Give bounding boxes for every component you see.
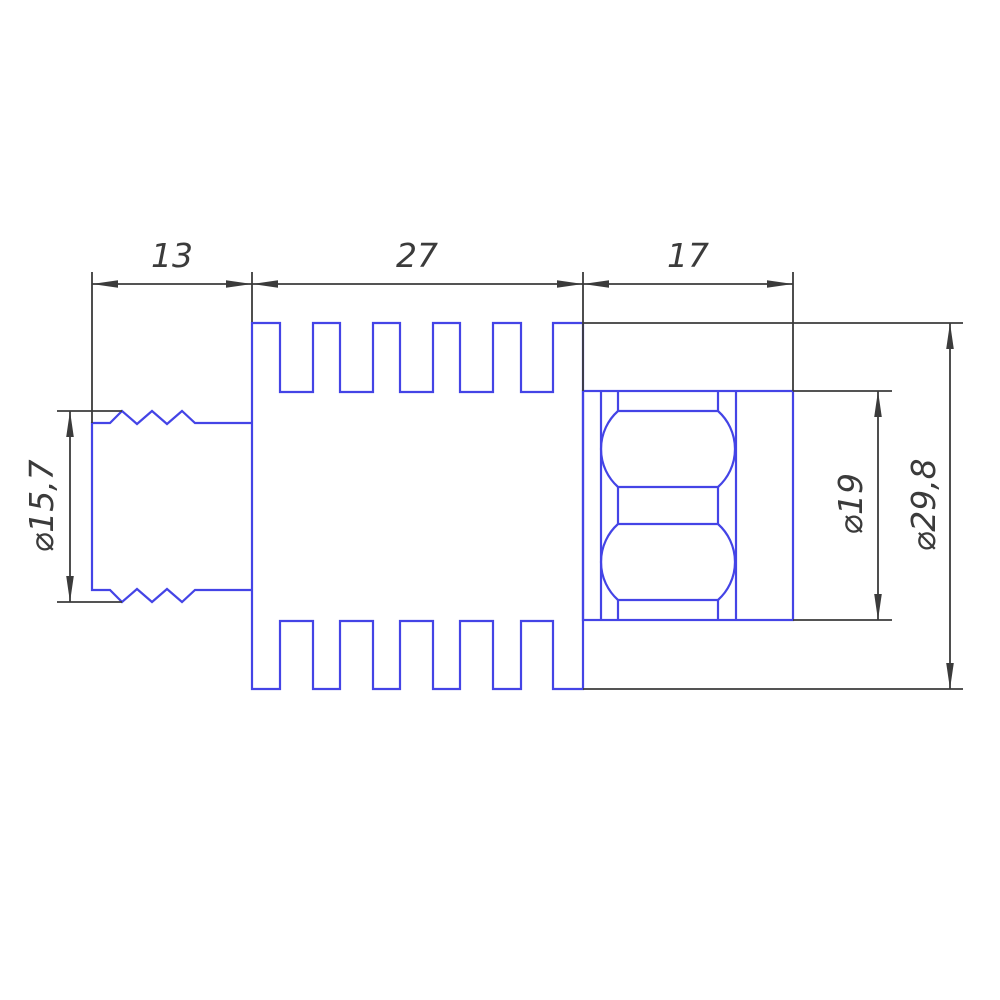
arrow-d19-bottom	[874, 594, 882, 620]
arrow-17-right	[767, 280, 793, 288]
dimension-lines	[57, 272, 963, 689]
arrow-d157-top	[66, 411, 74, 437]
label-diameter-19: ⌀19	[831, 473, 870, 535]
arrow-d298-bottom	[946, 663, 954, 689]
arrow-13-right	[226, 280, 252, 288]
label-length-27: 27	[396, 236, 438, 275]
barrel-roller-lower	[601, 524, 735, 600]
part-geometry	[92, 323, 793, 689]
label-diameter-15-7: ⌀15,7	[22, 459, 61, 552]
arrow-13-left	[92, 280, 118, 288]
arrow-d298-top	[946, 323, 954, 349]
arrow-d19-top	[874, 391, 882, 417]
arrow-27-right	[557, 280, 583, 288]
barrel-roller-upper	[601, 411, 735, 487]
dimension-arrows	[66, 280, 954, 689]
arrow-27-left	[252, 280, 278, 288]
finned-body-outline	[252, 323, 583, 689]
label-diameter-29-8: ⌀29,8	[904, 458, 943, 551]
drawing-canvas: 13 27 17 ⌀15,7 ⌀19 ⌀29,8	[0, 0, 1000, 1000]
arrow-d157-bottom	[66, 576, 74, 602]
label-length-17: 17	[667, 236, 709, 275]
technical-drawing: 13 27 17 ⌀15,7 ⌀19 ⌀29,8	[0, 0, 1000, 1000]
bearing-outer-rect	[583, 391, 793, 620]
label-length-13: 13	[151, 236, 193, 275]
arrow-17-left	[583, 280, 609, 288]
threaded-stub-outline	[92, 411, 252, 602]
